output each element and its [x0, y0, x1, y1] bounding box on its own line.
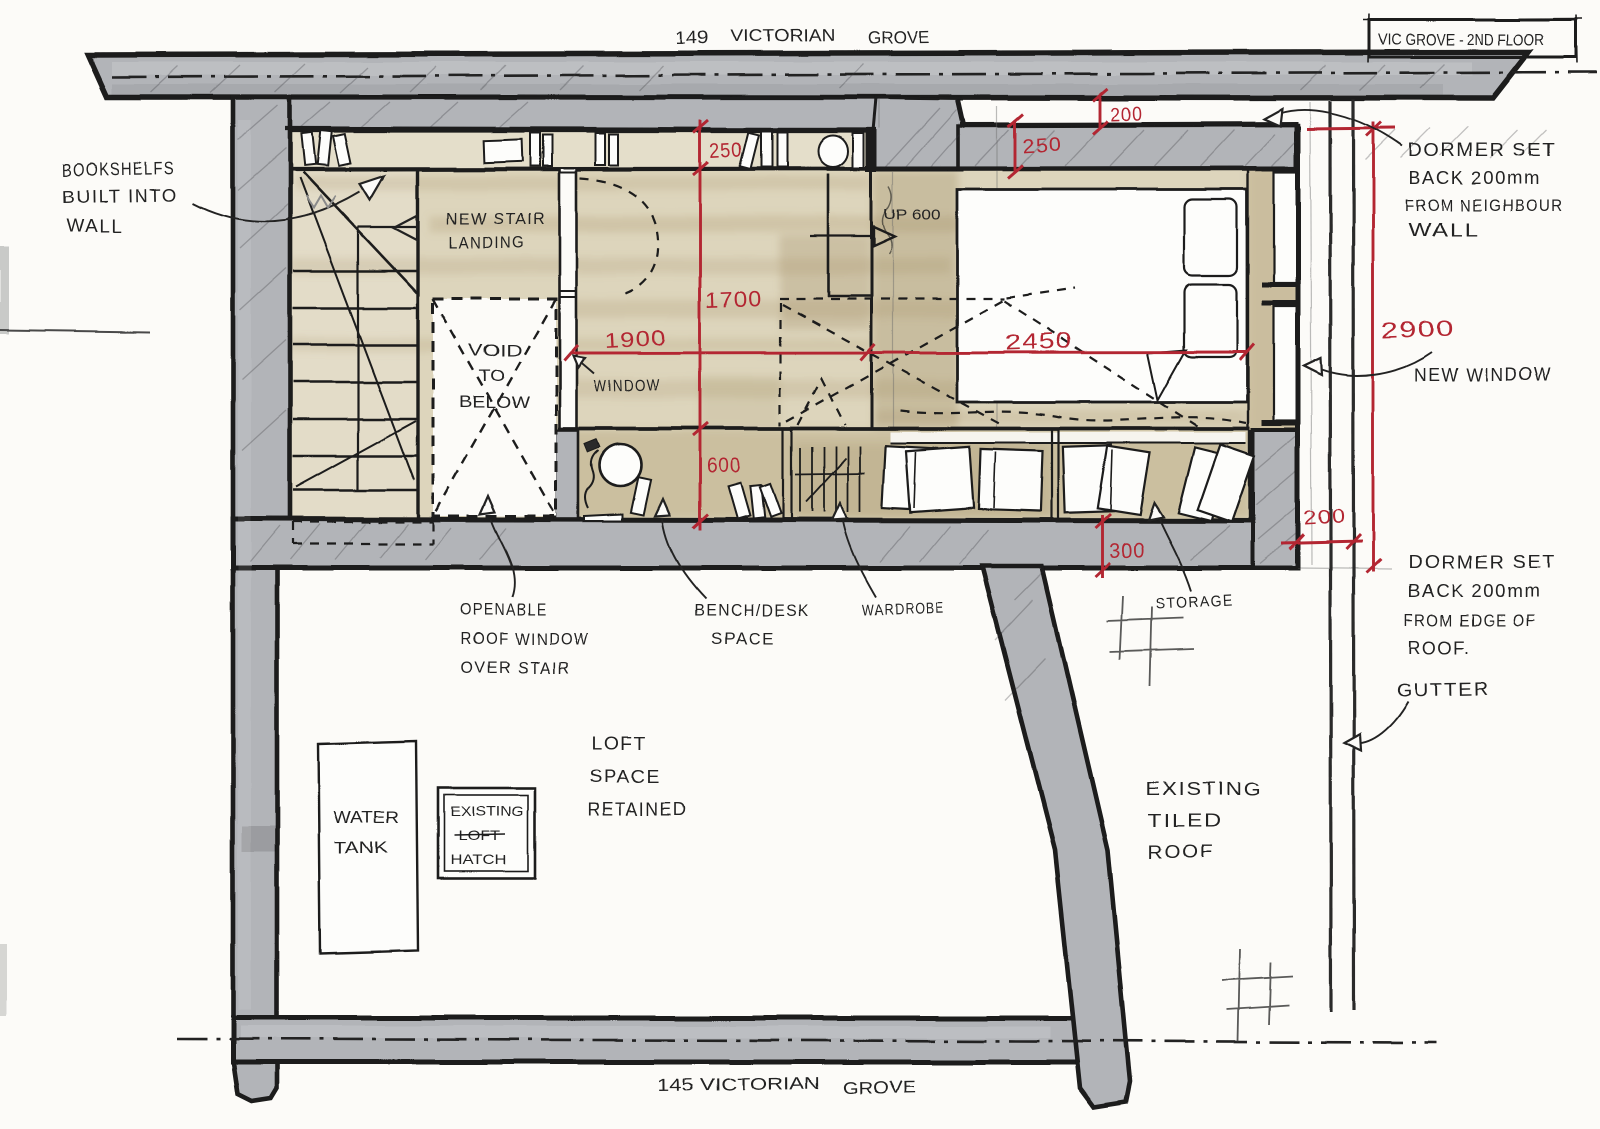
- svg-text:200: 200: [1110, 103, 1143, 126]
- svg-text:BOOKSHELFS: BOOKSHELFS: [62, 158, 175, 180]
- svg-text:BACK 200mm: BACK 200mm: [1408, 168, 1541, 188]
- svg-text:WATER: WATER: [333, 808, 399, 827]
- svg-text:NEW WINDOW: NEW WINDOW: [1414, 365, 1552, 385]
- svg-text:TO: TO: [479, 366, 505, 385]
- svg-text:200: 200: [1303, 506, 1346, 530]
- svg-text:OPENABLE: OPENABLE: [461, 601, 547, 619]
- svg-text:DORMER SET: DORMER SET: [1408, 140, 1556, 160]
- svg-text:TILED: TILED: [1148, 811, 1222, 831]
- svg-text:BELOW: BELOW: [459, 393, 529, 412]
- svg-text:145 VICTORIAN: 145 VICTORIAN: [657, 1074, 820, 1095]
- svg-text:HATCH: HATCH: [450, 851, 506, 867]
- svg-text:VIC GROVE - 2ND FLOOR: VIC GROVE - 2ND FLOOR: [1379, 32, 1545, 49]
- svg-text:250: 250: [709, 138, 743, 163]
- svg-text:UP 600: UP 600: [884, 206, 941, 223]
- svg-text:GUTTER: GUTTER: [1396, 679, 1490, 702]
- svg-text:EXISTING: EXISTING: [450, 803, 524, 819]
- svg-text:250: 250: [1022, 133, 1062, 158]
- svg-text:2900: 2900: [1380, 315, 1455, 343]
- svg-text:NEW STAIR: NEW STAIR: [446, 209, 546, 228]
- svg-text:GROVE: GROVE: [843, 1077, 916, 1098]
- svg-text:2450: 2450: [1004, 328, 1073, 355]
- svg-text:OVER STAIR: OVER STAIR: [461, 659, 571, 677]
- svg-text:600: 600: [707, 454, 742, 477]
- svg-text:RETAINED: RETAINED: [587, 800, 687, 820]
- svg-text:ROOF.: ROOF.: [1408, 638, 1470, 658]
- svg-text:300: 300: [1108, 539, 1145, 563]
- svg-text:LANDING: LANDING: [449, 233, 525, 252]
- svg-text:VOID: VOID: [469, 341, 522, 360]
- svg-text:WARDROBE: WARDROBE: [862, 601, 945, 619]
- svg-text:SPACE: SPACE: [589, 767, 661, 787]
- svg-text:WALL: WALL: [1408, 220, 1480, 240]
- svg-text:ROOF WINDOW: ROOF WINDOW: [461, 630, 589, 648]
- svg-text:SPACE: SPACE: [711, 630, 775, 648]
- svg-text:FROM EDGE OF: FROM EDGE OF: [1404, 611, 1536, 630]
- svg-text:WINDOW: WINDOW: [594, 377, 662, 396]
- svg-text:BUILT INTO: BUILT INTO: [62, 185, 178, 207]
- svg-text:TANK: TANK: [334, 838, 389, 857]
- svg-text:DORMER SET: DORMER SET: [1408, 552, 1556, 572]
- svg-text:EXISTING: EXISTING: [1146, 779, 1262, 799]
- svg-text:WALL: WALL: [66, 216, 123, 236]
- svg-text:1700: 1700: [705, 286, 762, 313]
- svg-text:FROM NEIGHBOUR: FROM NEIGHBOUR: [1404, 196, 1564, 215]
- svg-text:LOFT: LOFT: [591, 734, 647, 754]
- svg-text:1900: 1900: [604, 327, 667, 353]
- svg-text:BACK 200mm: BACK 200mm: [1408, 581, 1541, 601]
- svg-text:GROVE: GROVE: [868, 27, 930, 48]
- svg-text:BENCH/DESK: BENCH/DESK: [694, 602, 810, 620]
- svg-text:ROOF: ROOF: [1148, 842, 1214, 862]
- svg-text:VICTORIAN: VICTORIAN: [731, 25, 835, 46]
- svg-text:149: 149: [676, 27, 709, 48]
